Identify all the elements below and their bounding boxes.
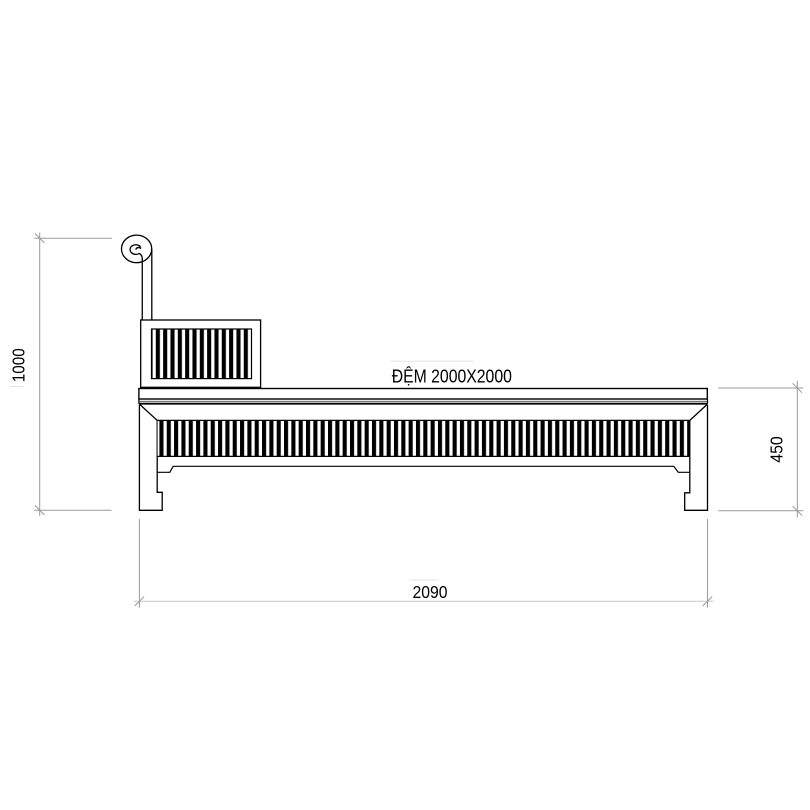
svg-text:2090: 2090 — [413, 582, 448, 602]
svg-text:1000: 1000 — [8, 348, 28, 382]
svg-text:450: 450 — [767, 436, 787, 463]
svg-text:ĐỆM 2000X2000: ĐỆM 2000X2000 — [392, 367, 512, 387]
